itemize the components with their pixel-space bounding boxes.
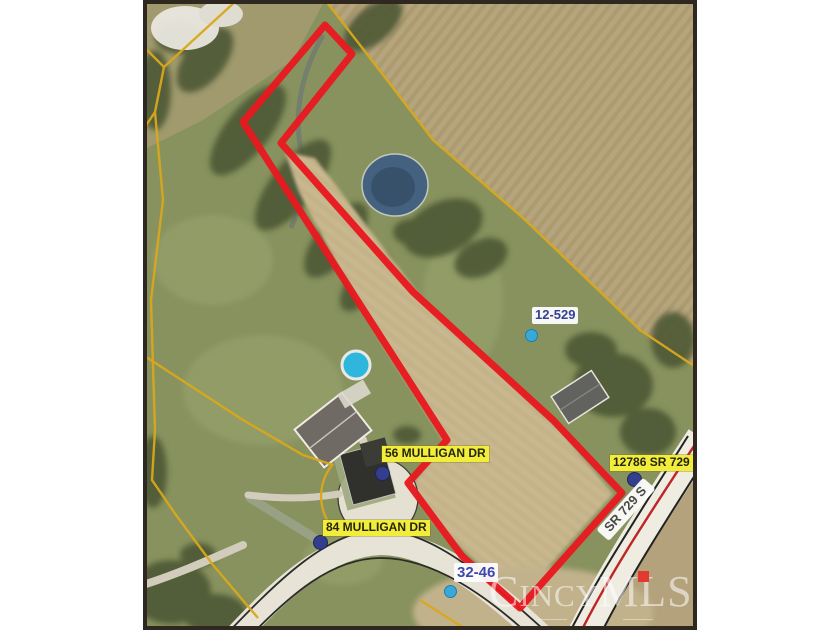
marker-dot-12-529 xyxy=(525,329,538,342)
mls-photo-canvas: 56 MULLIGAN DR 84 MULLIGAN DR 12786 SR 7… xyxy=(0,0,840,630)
parcel-label-12-529: 12-529 xyxy=(532,307,578,324)
pool xyxy=(342,351,370,379)
marker-dot-32-46 xyxy=(444,585,457,598)
map-photo: 56 MULLIGAN DR 84 MULLIGAN DR 12786 SR 7… xyxy=(143,0,697,630)
marker-dot-84-mulligan xyxy=(313,535,328,550)
parcel-label-32-46: 32-46 xyxy=(454,563,498,582)
address-label-12786-sr: 12786 SR 729 xyxy=(610,455,693,471)
marker-dot-56-mulligan xyxy=(375,466,390,481)
pond xyxy=(362,154,428,216)
address-label-56-mulligan: 56 MULLIGAN DR xyxy=(382,446,489,462)
address-label-84-mulligan: 84 MULLIGAN DR xyxy=(323,520,430,536)
